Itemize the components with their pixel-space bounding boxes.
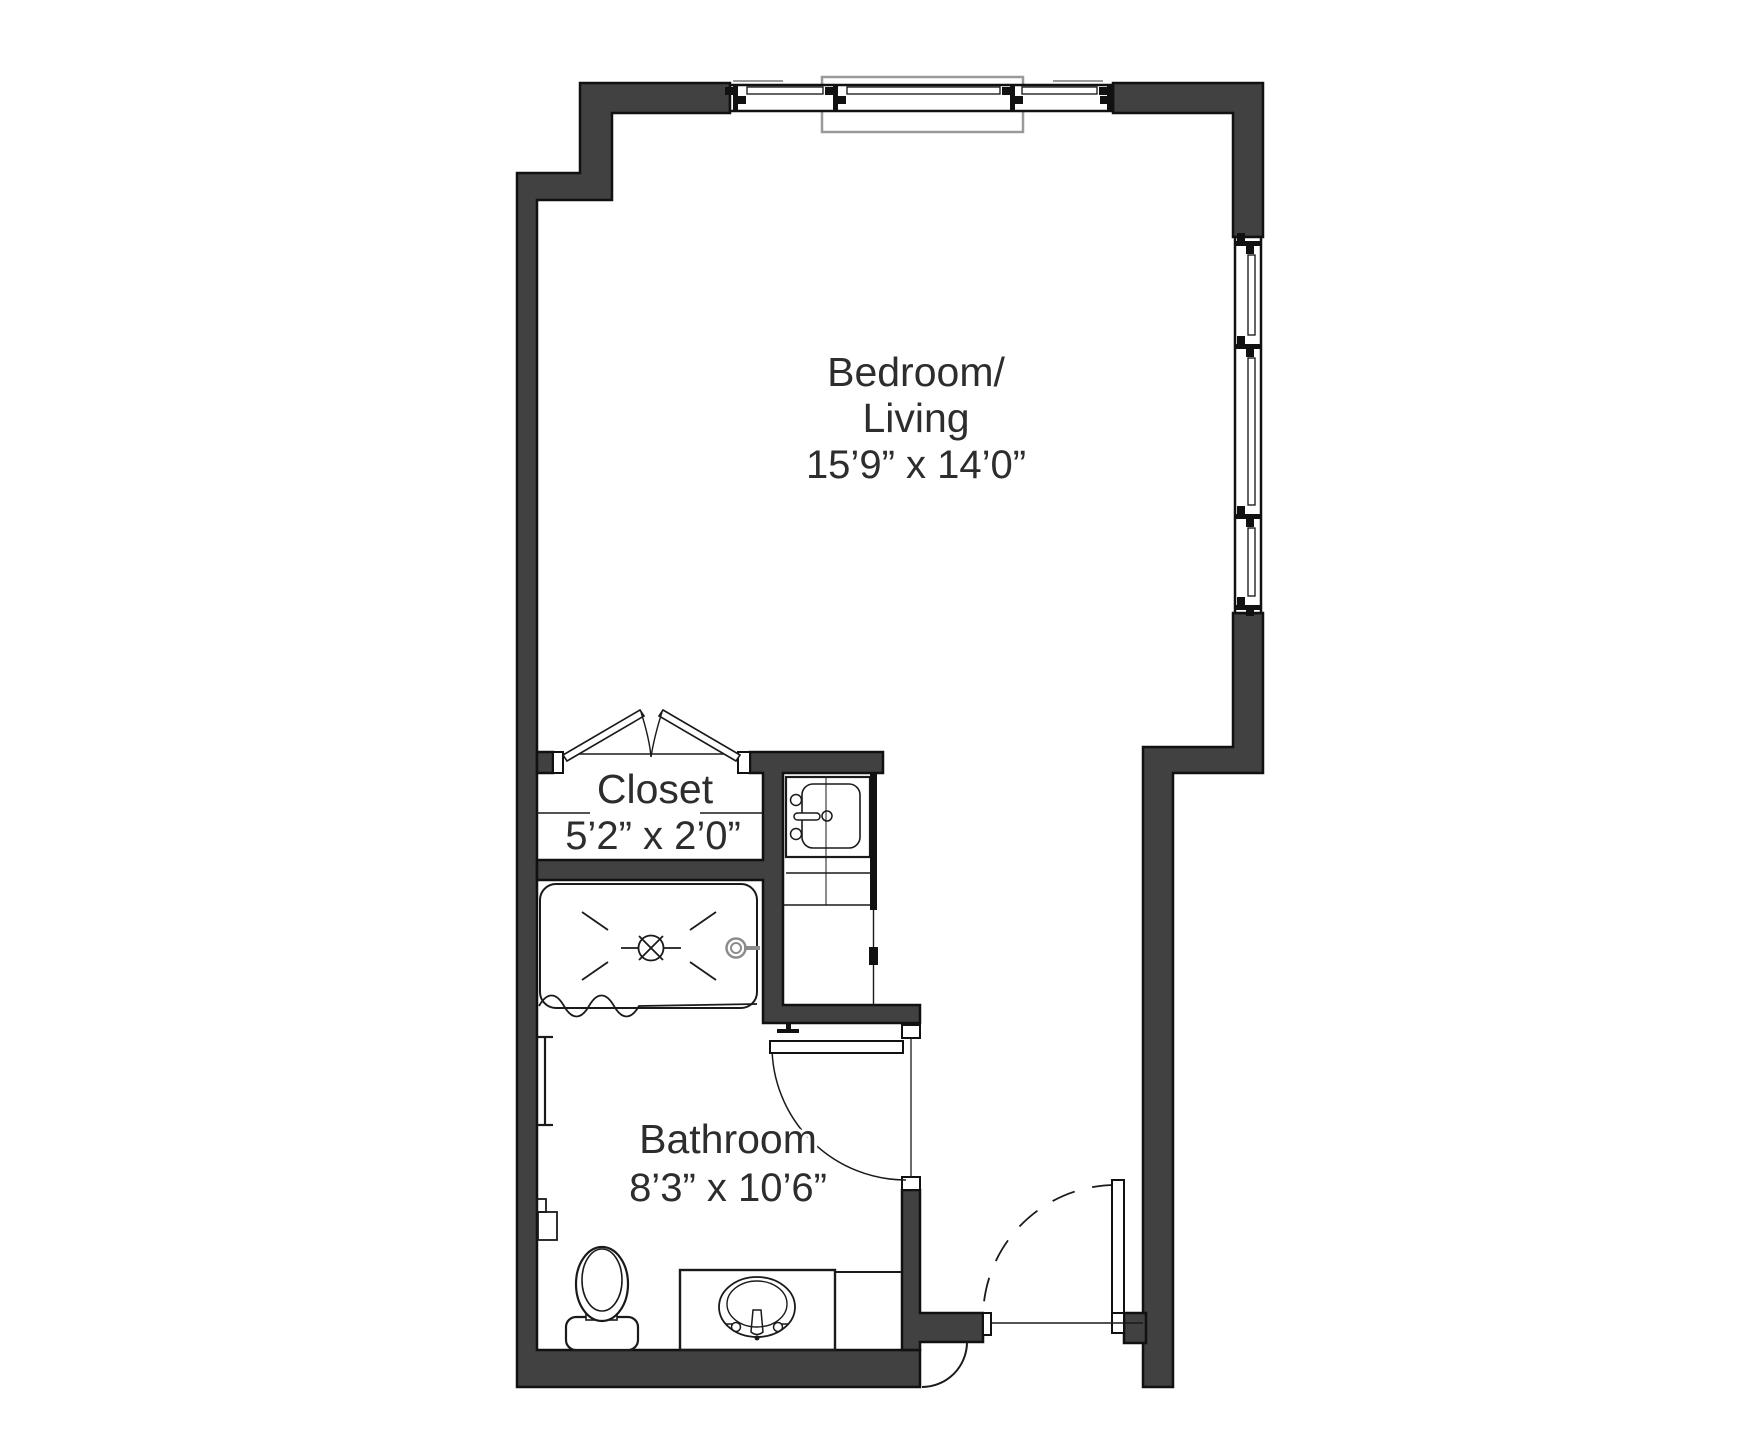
toilet-seat: [582, 1249, 622, 1311]
vanity-sink-outer: [719, 1277, 795, 1337]
vanity-sink-inner: [727, 1281, 787, 1327]
bedroom-dimensions: 15’9” x 14’0”: [806, 443, 1026, 487]
wall-entry-hinge-block: [1124, 1313, 1146, 1343]
floor-plan-drawing: Bedroom/ Living 15’9” x 14’0” Closet 5’2…: [0, 0, 1750, 1451]
kitchenette-nook: [783, 773, 878, 1005]
shower-head-icon: [727, 939, 761, 958]
bifold-center-fold: [641, 712, 651, 757]
bedroom-label-line2: Living: [862, 395, 969, 441]
wall-right-lower-group: [1143, 613, 1263, 1387]
vanity-icon: [680, 1270, 902, 1350]
entry-door-swing-arc: [983, 1185, 1116, 1318]
nook-partition-wall: [870, 773, 877, 910]
sink-knob-icon: [822, 811, 832, 821]
grab-bar-icon: [537, 1037, 553, 1125]
entry-jamb-left: [983, 1313, 991, 1335]
bathroom-door-leaf: [770, 1041, 903, 1053]
closet-dimensions: 5’2” x 2’0”: [565, 814, 741, 858]
top-window: [725, 77, 1113, 132]
closet-label: Closet: [597, 766, 714, 812]
vanity-faucet-base: [755, 1336, 760, 1341]
sink-handle-icon: [791, 795, 802, 806]
wall-bathroom-east-group: [902, 1190, 983, 1350]
bathroom-door-jamb-top: [902, 1025, 920, 1038]
nook-door-stop: [869, 947, 878, 965]
shower-curtain-line: [539, 996, 757, 1017]
wall-closet-nook-group: [537, 752, 920, 1023]
entry-door-leaf: [1112, 1180, 1124, 1313]
right-window: [1235, 233, 1261, 616]
door-stop-mark: [777, 1023, 799, 1033]
bathroom-label: Bathroom: [639, 1116, 817, 1162]
window-sashes: [747, 87, 1097, 94]
floor-plan-page: Bedroom/ Living 15’9” x 14’0” Closet 5’2…: [0, 0, 1750, 1451]
bathroom-door-jamb-bottom: [902, 1177, 920, 1190]
toilet-paper-holder-icon: [537, 1199, 557, 1240]
sink-handle-icon: [791, 829, 802, 840]
shower: [539, 884, 760, 1017]
wall-closet-jamb-left: [537, 752, 553, 773]
corner-swing-arc: [922, 1342, 967, 1387]
bifold-center-fold: [651, 712, 662, 757]
sink-spout-icon: [794, 813, 820, 820]
vanity-faucet-icon: [751, 1310, 763, 1335]
bedroom-label-line1: Bedroom/: [827, 349, 1005, 395]
wall-top-right-group: [1113, 83, 1263, 237]
room-labels: Bedroom/ Living 15’9” x 14’0” Closet 5’2…: [565, 349, 1026, 1210]
window-sashes: [1248, 255, 1255, 596]
toilet-icon: [566, 1247, 638, 1350]
bathroom-dimensions: 8’3” x 10’6”: [629, 1166, 827, 1210]
closet-jamb-left: [553, 752, 563, 773]
shower-drain-icon: [621, 936, 681, 961]
